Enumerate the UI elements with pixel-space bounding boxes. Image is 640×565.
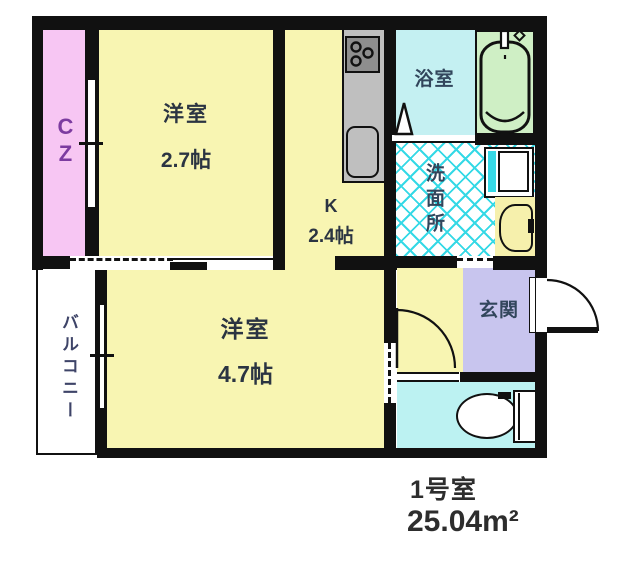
- toilet-tank: [513, 390, 537, 443]
- wall-segment: [396, 256, 457, 268]
- washing-machine-panel: [488, 151, 496, 192]
- label-kitchen-size: 2.4帖: [285, 227, 377, 246]
- sliding-door-rail: [170, 262, 207, 270]
- label-kitchen: K: [285, 197, 377, 215]
- wall-segment: [43, 256, 70, 268]
- kitchen-opening: [285, 256, 335, 270]
- room-western-1: [99, 30, 273, 256]
- washing-machine-lid: [498, 151, 529, 192]
- label-entrance: 玄関: [463, 301, 535, 320]
- label-washroom: 洗面所: [420, 152, 443, 248]
- label-closet: CZ: [52, 110, 76, 172]
- caption-floor-area: 25.04m²: [407, 507, 519, 537]
- floor-plan: CZ 洋室 2.7帖 K 2.4帖 浴室 洗面所 玄関 洋室 4.7帖 バルコニ…: [0, 0, 640, 565]
- basin-faucet: [528, 219, 534, 233]
- label-bathroom: 浴室: [394, 70, 475, 89]
- label-western-1: 洋室: [99, 104, 273, 125]
- wall-segment: [32, 16, 43, 270]
- caption-room-number: 1号室: [410, 478, 477, 503]
- dashed-opening: [70, 258, 173, 261]
- wall-segment: [97, 448, 547, 458]
- toilet-icon: [455, 388, 538, 444]
- toilet-tank-line: [518, 393, 520, 440]
- room-western-2: [107, 270, 384, 448]
- washing-machine-icon: [484, 147, 534, 198]
- dashed-opening: [457, 258, 493, 261]
- label-western-2: 洋室: [107, 318, 384, 341]
- wall-segment: [460, 372, 547, 382]
- wall-segment: [535, 16, 547, 448]
- entrance-door-icon: [540, 272, 610, 338]
- bath-folding-door-icon: [392, 98, 416, 136]
- bathtub-icon: [475, 30, 535, 135]
- toilet-door-icon: [380, 300, 470, 380]
- wall-segment: [493, 256, 547, 270]
- stove-burners-icon: [347, 38, 377, 70]
- balcony-window-tick: [90, 354, 114, 357]
- label-western-1-size: 2.7帖: [99, 150, 273, 171]
- closet-door-tick: [79, 142, 103, 145]
- sliding-door-leaf: [170, 258, 275, 260]
- label-western-2-size: 4.7帖: [107, 363, 384, 386]
- wall-segment: [32, 16, 547, 30]
- wall-segment: [335, 256, 397, 270]
- label-balcony: バルコニー: [55, 300, 77, 435]
- toilet-seat-hinge: [498, 392, 511, 399]
- wall-segment: [273, 30, 285, 270]
- kitchen-sink-icon: [346, 126, 379, 178]
- toilet-bowl: [456, 393, 518, 439]
- bath-threshold: [392, 135, 475, 143]
- stove-icon: [345, 36, 380, 73]
